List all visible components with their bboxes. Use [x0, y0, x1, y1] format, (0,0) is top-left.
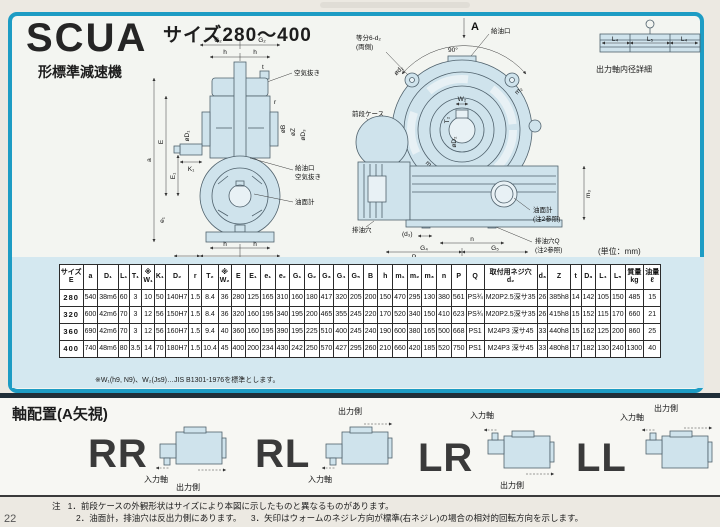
- dim-T2: T₂: [444, 116, 451, 123]
- dim-h-top-right: h: [253, 49, 257, 56]
- table-cell: 50: [154, 290, 165, 307]
- column-header: E: [231, 265, 246, 290]
- note-line-2: 2．油面計，排油穴は反出力側にあります。 3．矢印はウォームのネジレ方向が標準(…: [76, 512, 583, 524]
- table-cell: 15: [570, 307, 581, 324]
- table-cell: 310: [275, 290, 290, 307]
- config-LL-icon: [636, 422, 720, 480]
- column-header: e₁: [260, 265, 275, 290]
- table-cell: 36: [218, 290, 231, 307]
- table-cell: 210: [378, 341, 393, 358]
- table-cell: 125: [246, 290, 261, 307]
- column-header: L₅: [610, 265, 625, 290]
- dim-G2-left: G₂: [214, 37, 222, 44]
- table-cell: 160: [246, 307, 261, 324]
- table-cell: 180: [304, 290, 319, 307]
- table-cell: 320: [231, 307, 246, 324]
- table-cell: 26: [537, 307, 548, 324]
- column-header: L₄: [596, 265, 611, 290]
- size-cell: 320: [59, 307, 83, 324]
- dim-dia-D3: øD₃: [300, 129, 307, 141]
- page-number: 22: [4, 513, 16, 525]
- front-oil-port: 給油口: [491, 26, 511, 35]
- column-header: T₁: [129, 265, 142, 290]
- table-cell: 14: [142, 341, 155, 358]
- table-cell: 40: [218, 324, 231, 341]
- table-cell: 56: [154, 324, 165, 341]
- table-cell: 3.5: [129, 341, 142, 358]
- column-header: G₅: [349, 265, 364, 290]
- view-arrow-A: A: [471, 21, 479, 33]
- table-cell: 140H7: [165, 290, 189, 307]
- column-header: T₂: [202, 265, 219, 290]
- column-header: m₃: [422, 265, 437, 290]
- table-cell: 180H7: [165, 341, 189, 358]
- oil-port-label: 給油口: [295, 163, 315, 172]
- table-cell: 15: [570, 324, 581, 341]
- table-cell: 9.4: [202, 324, 219, 341]
- table-cell: 295: [349, 341, 364, 358]
- column-header: G₃: [319, 265, 334, 290]
- table-cell: 225: [304, 324, 319, 341]
- config-RL-icon: [316, 418, 400, 476]
- drain-label: 排油穴: [352, 225, 372, 234]
- column-header: L₁: [118, 265, 129, 290]
- table-cell: 240: [363, 324, 378, 341]
- dim-dia-d2: ød₂: [393, 65, 405, 77]
- table-cell: PS1: [466, 341, 484, 358]
- front-stage-case: [356, 116, 410, 220]
- table-cell: 150: [610, 290, 625, 307]
- table-cell: 1.5: [189, 290, 202, 307]
- table-cell: 465: [319, 307, 334, 324]
- dim-G4: G₄: [420, 245, 428, 252]
- table-cell: 500: [437, 324, 452, 341]
- table-cell: 1300: [625, 341, 644, 358]
- config-RL-input: 入力軸: [308, 474, 332, 485]
- column-header: K₁: [154, 265, 165, 290]
- table-cell: M24P3 深サ45: [484, 324, 537, 341]
- table-cell: 1.5: [189, 341, 202, 358]
- table-cell: 115: [596, 307, 611, 324]
- table-cell: 320: [334, 290, 349, 307]
- table-row: 40074048m6803.51470180H71.510.4454002002…: [59, 341, 660, 358]
- table-cell: 245: [349, 324, 364, 341]
- table-cell: 400: [334, 324, 349, 341]
- air-vent2-label: 空気抜き: [295, 172, 321, 181]
- column-header: e₂: [275, 265, 290, 290]
- table-cell: 170: [378, 307, 393, 324]
- table-cell: 660: [625, 307, 644, 324]
- dim-t: t: [262, 64, 264, 71]
- table-cell: 70: [118, 307, 129, 324]
- table-cell: 561: [451, 290, 466, 307]
- dim-e1: e₁: [159, 216, 166, 223]
- table-row: 36069042m67031256160H71.59.4403601601953…: [59, 324, 660, 341]
- dim-G2-right: G₂: [258, 37, 266, 44]
- table-cell: 340: [275, 307, 290, 324]
- size-cell: 280: [59, 290, 83, 307]
- table-cell: 150: [378, 290, 393, 307]
- table-cell: 427: [334, 341, 349, 358]
- table-cell: 234: [260, 341, 275, 358]
- table-cell: 185: [422, 341, 437, 358]
- dim-W2: W₂: [458, 96, 467, 103]
- table-cell: 245: [349, 307, 364, 324]
- table-cell: 165: [422, 324, 437, 341]
- column-header: Z: [548, 265, 570, 290]
- column-header: m₁: [393, 265, 408, 290]
- table-cell: 400: [231, 341, 246, 358]
- column-header: G₄: [334, 265, 349, 290]
- table-cell: 340: [407, 307, 422, 324]
- column-header: ※ W₁: [142, 265, 155, 290]
- column-header: r: [189, 265, 202, 290]
- config-RL-label: RL: [255, 434, 310, 474]
- table-cell: 510: [319, 324, 334, 341]
- table-cell: M24P3 深サ45: [484, 341, 537, 358]
- table-cell: 3: [129, 307, 142, 324]
- table-cell: 190: [378, 324, 393, 341]
- table-cell: 38m6: [98, 290, 119, 307]
- column-header: h: [378, 265, 393, 290]
- table-cell: 390: [275, 324, 290, 341]
- table-cell: 125: [596, 324, 611, 341]
- table-cell: 360: [231, 324, 246, 341]
- table-cell: 520: [437, 341, 452, 358]
- table-cell: 623: [451, 307, 466, 324]
- column-header: B: [363, 265, 378, 290]
- side-body: [174, 62, 280, 242]
- dim-table-header-row: サイズ EaD₁L₁T₁※ W₁K₁D₂rT₂※ W₂EE₁e₁e₂G₁G₂G₃…: [59, 265, 660, 290]
- dim-table-body: 28054038m66031050140H71.58.4362801251653…: [59, 290, 660, 358]
- table-cell: 660: [393, 341, 408, 358]
- table-cell: 10.4: [202, 341, 219, 358]
- table-cell: 165: [260, 290, 275, 307]
- table-cell: 33: [537, 341, 548, 358]
- dim-a: a: [146, 158, 153, 162]
- table-cell: PS1: [466, 324, 484, 341]
- table-note: ※W₁(h9, N9)、W₂(Js9)…JIS B1301-1976を標準としま…: [95, 375, 280, 385]
- table-cell: 21: [644, 307, 661, 324]
- config-RR-label: RR: [88, 434, 148, 474]
- column-header: 油量 ℓ: [644, 265, 661, 290]
- dim-dia-B: øB: [280, 125, 287, 133]
- config-LL-label: LL: [576, 438, 627, 478]
- table-cell: 485: [625, 290, 644, 307]
- dim-K1: K₁: [188, 166, 195, 173]
- dim-E1: E₁: [170, 172, 177, 179]
- column-header: G₁: [290, 265, 305, 290]
- dim-L5: L₅: [647, 36, 654, 43]
- table-cell: 48m6: [98, 341, 119, 358]
- column-header: P: [451, 265, 466, 290]
- bore-detail-caption: 出力軸内径詳細: [596, 64, 652, 75]
- column-header: ※ W₂: [218, 265, 231, 290]
- gauge-ref: (注2参照): [533, 214, 560, 223]
- dim-G5: G₅: [491, 245, 499, 252]
- config-RR-output: 出力側: [176, 482, 200, 493]
- table-cell: 195: [290, 324, 305, 341]
- table-cell: 150H7: [165, 307, 189, 324]
- table-cell: 280: [231, 290, 246, 307]
- side-view-drawing: G₂ G₂ h h t 空気抜き a E E₁ e₁ øD₁ K₁ r: [140, 24, 375, 264]
- table-cell: 25: [644, 324, 661, 341]
- dim-d3: (d₃): [402, 231, 413, 238]
- section-bottom-rule: [0, 495, 720, 497]
- table-cell: 195: [290, 307, 305, 324]
- table-cell: 1.5: [189, 307, 202, 324]
- column-header: 質量 kg: [625, 265, 644, 290]
- note-line-1: 注 1．前段ケースの外観形状はサイズにより本図に示したものと異なるものがあります…: [52, 500, 394, 512]
- gauge-label: 油面計: [533, 205, 553, 214]
- table-cell: 600: [393, 324, 408, 341]
- table-cell: 42m6: [98, 307, 119, 324]
- table-cell: 33: [537, 324, 548, 341]
- table-cell: 540: [83, 290, 98, 307]
- table-cell: 1.5: [189, 324, 202, 341]
- column-header: Q: [466, 265, 484, 290]
- table-cell: 417: [319, 290, 334, 307]
- config-RL-output: 出力側: [338, 406, 362, 417]
- dim-dia-D1: øD₁: [184, 130, 191, 142]
- table-cell: 200: [610, 324, 625, 341]
- dim-n: n: [470, 236, 474, 243]
- table-cell: 150: [422, 307, 437, 324]
- table-cell: 860: [625, 324, 644, 341]
- shaft-section-title: 軸配置(A矢視): [12, 403, 108, 424]
- drainQ-ref: (注2参照): [535, 245, 562, 254]
- config-RR-input: 入力軸: [144, 474, 168, 485]
- table-cell: 160: [246, 324, 261, 341]
- table-cell: 690: [83, 324, 98, 341]
- column-header: a: [83, 265, 98, 290]
- table-cell: 480h8: [548, 341, 570, 358]
- table-cell: 740: [83, 341, 98, 358]
- table-cell: 8.4: [202, 290, 219, 307]
- dim-L4-left: L₄: [612, 36, 619, 43]
- table-cell: 12: [142, 307, 155, 324]
- table-cell: 3: [129, 324, 142, 341]
- air-vent-label: 空気抜き: [294, 68, 320, 77]
- config-LL-output: 出力側: [654, 403, 678, 414]
- note-2: 2．油面計，排油穴は反出力側にあります。: [76, 513, 241, 523]
- table-cell: M20P2.5深サ35: [484, 290, 537, 307]
- table-cell: 160: [290, 290, 305, 307]
- config-LR-output: 出力側: [500, 480, 524, 491]
- column-header: d₃: [537, 265, 548, 290]
- table-cell: 355: [334, 307, 349, 324]
- angle-90: 90°: [448, 46, 458, 54]
- note-3: 3．矢印はウォームのネジレ方向が標準(右ネジレ)の場合の相対的回転方向を示します…: [251, 513, 583, 523]
- column-header: サイズ E: [59, 265, 83, 290]
- table-cell: 260: [363, 341, 378, 358]
- table-cell: 130: [596, 341, 611, 358]
- config-LR-label: LR: [418, 438, 473, 478]
- table-cell: 415h8: [548, 307, 570, 324]
- dimension-table: サイズ EaD₁L₁T₁※ W₁K₁D₂rT₂※ W₂EE₁e₁e₂G₁G₂G₃…: [59, 264, 661, 358]
- table-cell: 200: [363, 290, 378, 307]
- bolt-pattern-label2: (両側): [356, 43, 373, 51]
- table-cell: 12: [142, 324, 155, 341]
- table-cell: 600: [83, 307, 98, 324]
- front-view-drawing: A 90° 等分6-d₂ (両側) ød₂ 給油口 W₂ T₂ øD₂ m₁ m…: [352, 14, 608, 266]
- table-row: 28054038m66031050140H71.58.4362801251653…: [59, 290, 660, 307]
- config-LL-input: 入力軸: [620, 412, 644, 423]
- table-cell: 195: [260, 307, 275, 324]
- table-cell: 10: [142, 290, 155, 307]
- size-cell: 360: [59, 324, 83, 341]
- table-cell: 15: [644, 290, 661, 307]
- table-cell: 182: [581, 341, 596, 358]
- scan-artifact: [320, 2, 470, 8]
- table-cell: 240: [610, 341, 625, 358]
- table-cell: 80: [118, 341, 129, 358]
- table-cell: 70: [118, 324, 129, 341]
- table-cell: 195: [260, 324, 275, 341]
- dim-dia-Z: øZ: [290, 128, 297, 136]
- config-RR-icon: [150, 418, 234, 476]
- table-cell: 26: [537, 290, 548, 307]
- table-cell: 17: [570, 341, 581, 358]
- column-header: D₃: [581, 265, 596, 290]
- dim-L4-right: L₄: [681, 36, 688, 43]
- config-LR-input: 入力軸: [470, 410, 494, 421]
- table-cell: 162: [581, 324, 596, 341]
- table-cell: 200: [304, 307, 319, 324]
- table-cell: 470: [393, 290, 408, 307]
- table-cell: 8.4: [202, 307, 219, 324]
- table-cell: PS¾: [466, 290, 484, 307]
- bolt-pattern-label: 等分6-d₂: [356, 33, 381, 42]
- bore-detail-drawing: L₄ L₅ L₄: [592, 16, 708, 64]
- note-1: 1．前段ケースの外観形状はサイズにより本図に示したものと異なるものがあります。: [68, 501, 394, 511]
- column-header: E₁: [246, 265, 261, 290]
- table-cell: 220: [363, 307, 378, 324]
- table-cell: 56: [154, 307, 165, 324]
- table-cell: 295: [407, 290, 422, 307]
- table-cell: PS¾: [466, 307, 484, 324]
- note-prefix: 注: [52, 501, 61, 511]
- table-cell: 60: [118, 290, 129, 307]
- table-cell: 410: [437, 307, 452, 324]
- dim-h-bottom-left: h: [223, 241, 227, 248]
- dim-h-bottom-right: h: [253, 241, 257, 248]
- table-cell: 200: [246, 341, 261, 358]
- dim-h-top-left: h: [223, 49, 227, 56]
- table-cell: 14: [570, 290, 581, 307]
- table-cell: 160H7: [165, 324, 189, 341]
- config-LR-icon: [478, 422, 562, 480]
- table-cell: 520: [393, 307, 408, 324]
- column-header: m₂: [407, 265, 422, 290]
- table-cell: 130: [422, 290, 437, 307]
- oil-gauge-label: 油面計: [295, 197, 315, 206]
- table-row: 32060042m67031256150H71.58.4363201601953…: [59, 307, 660, 324]
- table-cell: 440h8: [548, 324, 570, 341]
- column-header: D₂: [165, 265, 189, 290]
- table-cell: 105: [596, 290, 611, 307]
- table-cell: 40: [644, 341, 661, 358]
- table-cell: 45: [218, 341, 231, 358]
- table-cell: 750: [451, 341, 466, 358]
- table-cell: 36: [218, 307, 231, 324]
- table-cell: 170: [610, 307, 625, 324]
- column-header: n: [437, 265, 452, 290]
- table-cell: 570: [319, 341, 334, 358]
- table-cell: 142: [581, 290, 596, 307]
- table-cell: 250: [304, 341, 319, 358]
- dim-E: E: [158, 139, 165, 144]
- column-header: 取付用ネジ穴 d₂: [484, 265, 537, 290]
- table-cell: M20P2.5深サ35: [484, 307, 537, 324]
- column-header: G₂: [304, 265, 319, 290]
- table-cell: 3: [129, 290, 142, 307]
- dim-m3: m₃: [585, 190, 592, 198]
- column-header: t: [570, 265, 581, 290]
- table-cell: 668: [451, 324, 466, 341]
- table-cell: 242: [290, 341, 305, 358]
- table-cell: 380: [407, 324, 422, 341]
- size-cell: 400: [59, 341, 83, 358]
- table-cell: 385h8: [548, 290, 570, 307]
- dimension-table-wrap: サイズ EaD₁L₁T₁※ W₁K₁D₂rT₂※ W₂EE₁e₁e₂G₁G₂G₃…: [13, 264, 707, 358]
- dim-dia-D2: øD₂: [451, 136, 458, 148]
- column-header: D₁: [98, 265, 119, 290]
- table-cell: 42m6: [98, 324, 119, 341]
- table-cell: 152: [581, 307, 596, 324]
- table-cell: 430: [275, 341, 290, 358]
- drainQ-label: 排油穴Q: [535, 236, 560, 245]
- table-cell: 380: [437, 290, 452, 307]
- dim-r: r: [274, 99, 277, 106]
- table-cell: 70: [154, 341, 165, 358]
- table-cell: 205: [349, 290, 364, 307]
- table-cell: 420: [407, 341, 422, 358]
